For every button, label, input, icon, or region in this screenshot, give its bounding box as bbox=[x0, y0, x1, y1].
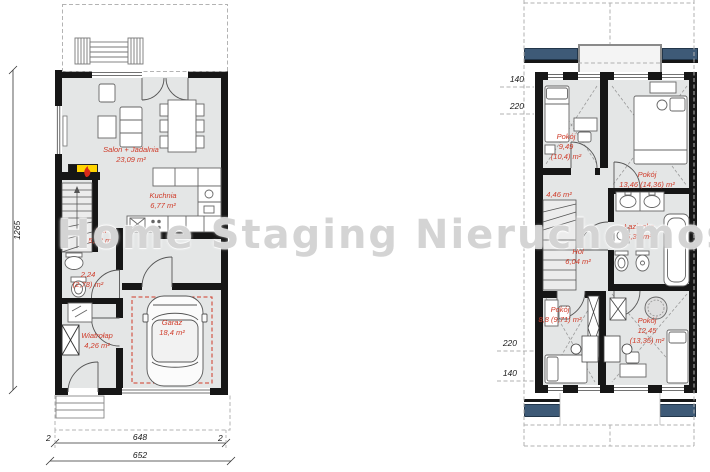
room-label-pokoj-ne: Pokój 13,46 (14,36) m² bbox=[619, 170, 674, 190]
room-label-pokoj-sw: Pokój 8,8 (9,71) m² bbox=[539, 305, 582, 325]
dim-knee-bottom-2: 140 bbox=[495, 369, 517, 378]
car-icon bbox=[143, 296, 207, 386]
desk-icon bbox=[650, 82, 676, 93]
balcony-frame-lines bbox=[560, 393, 660, 425]
dim-knee-bottom-1: 220 bbox=[495, 339, 517, 348]
desk-icon bbox=[620, 364, 646, 377]
watermark: Home Staging Nieruchomość bbox=[57, 212, 710, 258]
bedroom-ne-furniture bbox=[634, 82, 687, 164]
radiator-icon bbox=[63, 116, 67, 146]
room-label-wiatrolap: Wiatrołap 4,26 m² bbox=[81, 331, 113, 351]
room-label-salon: Salon + Jadalnia 23,09 m² bbox=[103, 145, 159, 165]
dim-width-inner: 648 bbox=[133, 433, 147, 442]
desk-icon bbox=[574, 118, 597, 131]
dining-table-icon bbox=[168, 100, 196, 152]
room-label-garaz: Garaż 18,4 m² bbox=[159, 318, 184, 338]
dim-width-total: 652 bbox=[133, 451, 147, 460]
floor-plan-image: Salon + Jadalnia 23,09 m² Kuchnia 6,77 m… bbox=[0, 0, 710, 472]
room-label-schody: 4,46 m² bbox=[546, 190, 571, 200]
dim-knee-top-1: 140 bbox=[502, 75, 524, 84]
room-label-kuchnia: Kuchnia 6,77 m² bbox=[149, 191, 176, 211]
garden-bench-icon bbox=[75, 38, 143, 64]
dim-wall-left: 2 bbox=[46, 434, 51, 443]
dim-knee-top-2: 220 bbox=[502, 102, 524, 111]
room-label-pokoj-nw: Pokój 9,49 (10,4) m² bbox=[551, 132, 581, 161]
fireplace-flame-icon bbox=[69, 165, 90, 179]
entrance-steps bbox=[56, 396, 104, 418]
dim-wall-right: 2 bbox=[218, 434, 223, 443]
room-label-pokoj-se: Pokój 12,45 (13,35) m² bbox=[630, 316, 665, 345]
dim-height-total: 1265 bbox=[13, 212, 22, 248]
room-label-wc: 2,24 (2,78) m² bbox=[73, 270, 103, 290]
